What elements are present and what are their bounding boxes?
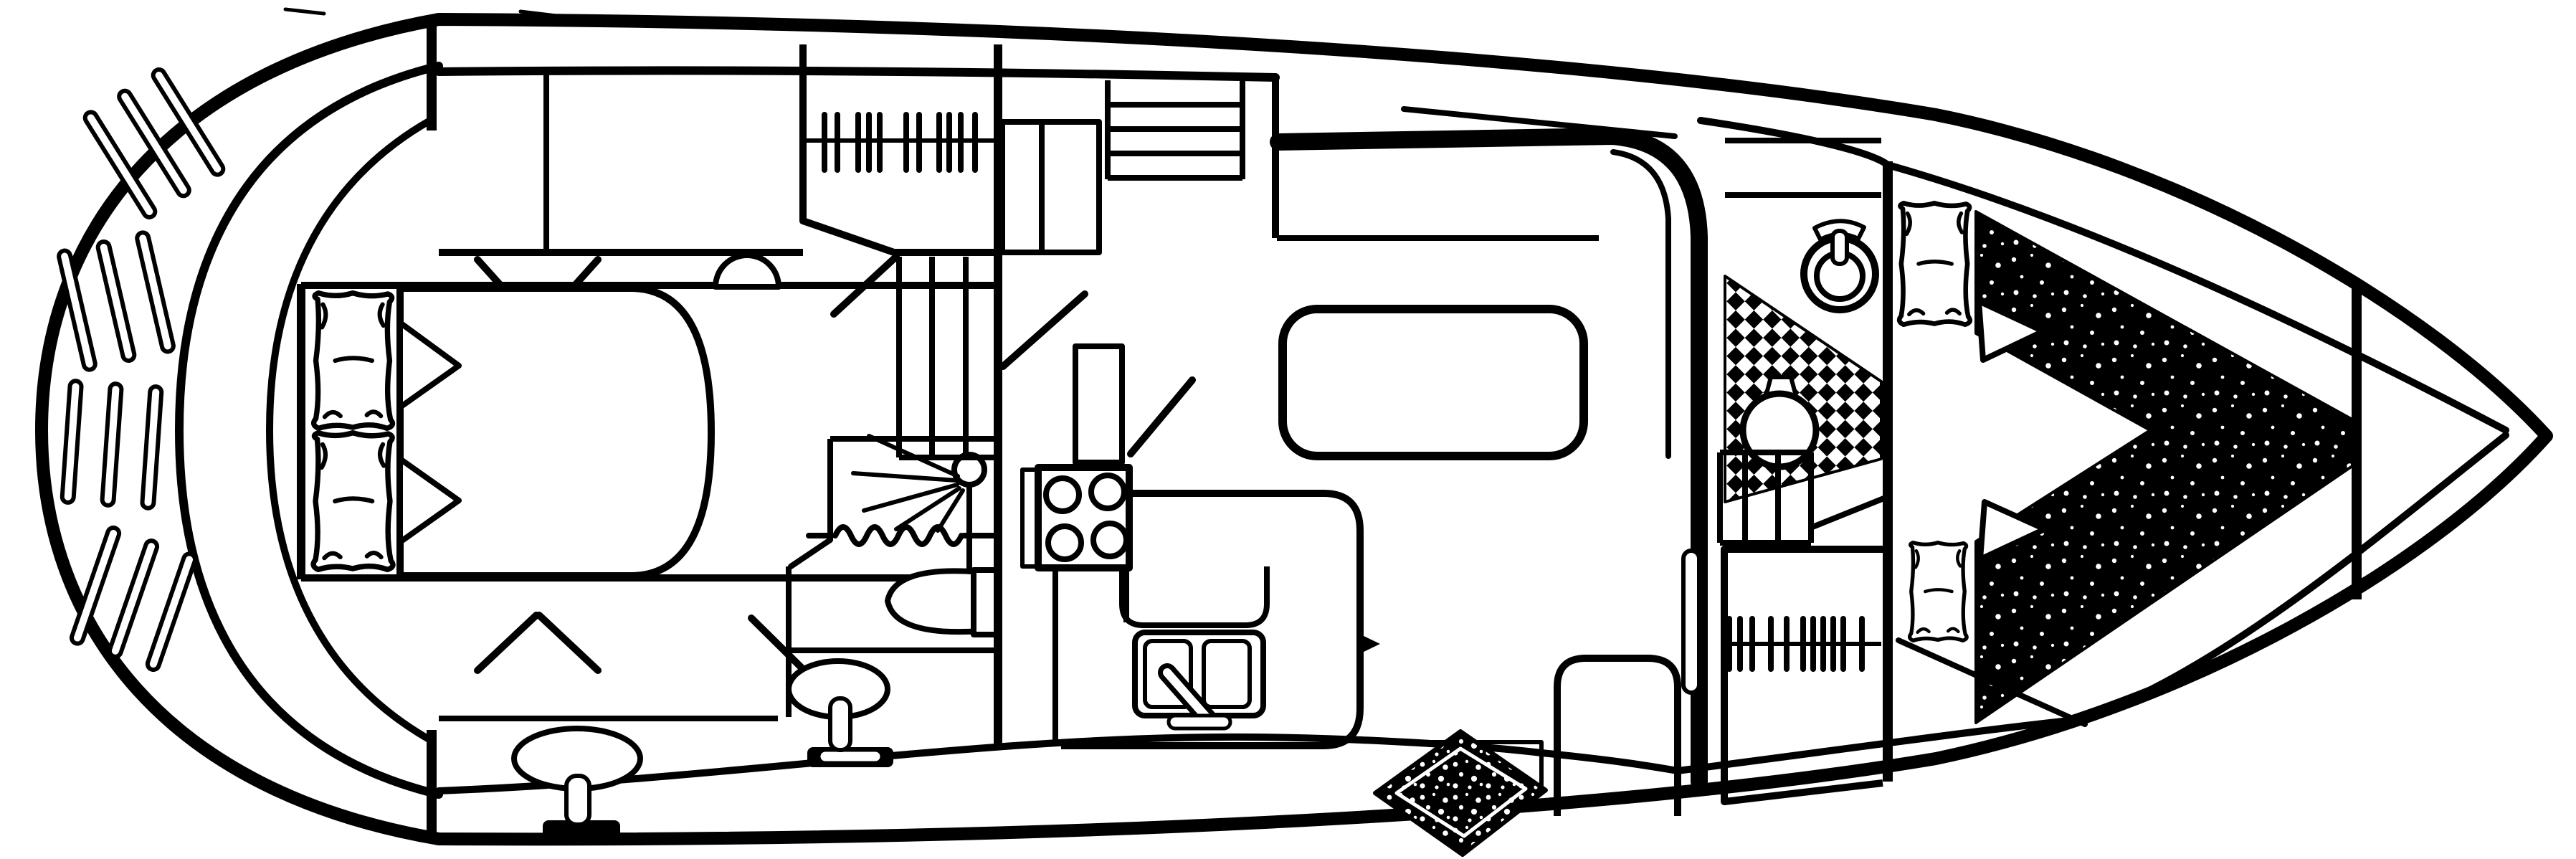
v-berth-pillow [1910, 543, 1967, 641]
faucet-base [1169, 716, 1230, 729]
aft-berth-pillow [313, 433, 393, 570]
v-berth-pillow [1899, 203, 1970, 324]
toilet-tank [974, 570, 997, 635]
galley-stove [1038, 468, 1129, 568]
faucet [566, 776, 589, 825]
salon-settee [1283, 309, 1584, 456]
toilet-pull [1833, 231, 1847, 264]
cabin-door-leaf [1683, 551, 1699, 693]
aft-berth-mattress [400, 288, 711, 576]
floor-plan-page [0, 0, 2576, 859]
faucet-slot [819, 750, 882, 763]
aft-berth-pillow [314, 293, 393, 429]
galley-double-sink [1135, 632, 1263, 729]
toilet [888, 570, 997, 635]
faucet [830, 698, 850, 750]
boat-floor-plan [0, 0, 2576, 859]
toilet-bowl [888, 571, 981, 632]
